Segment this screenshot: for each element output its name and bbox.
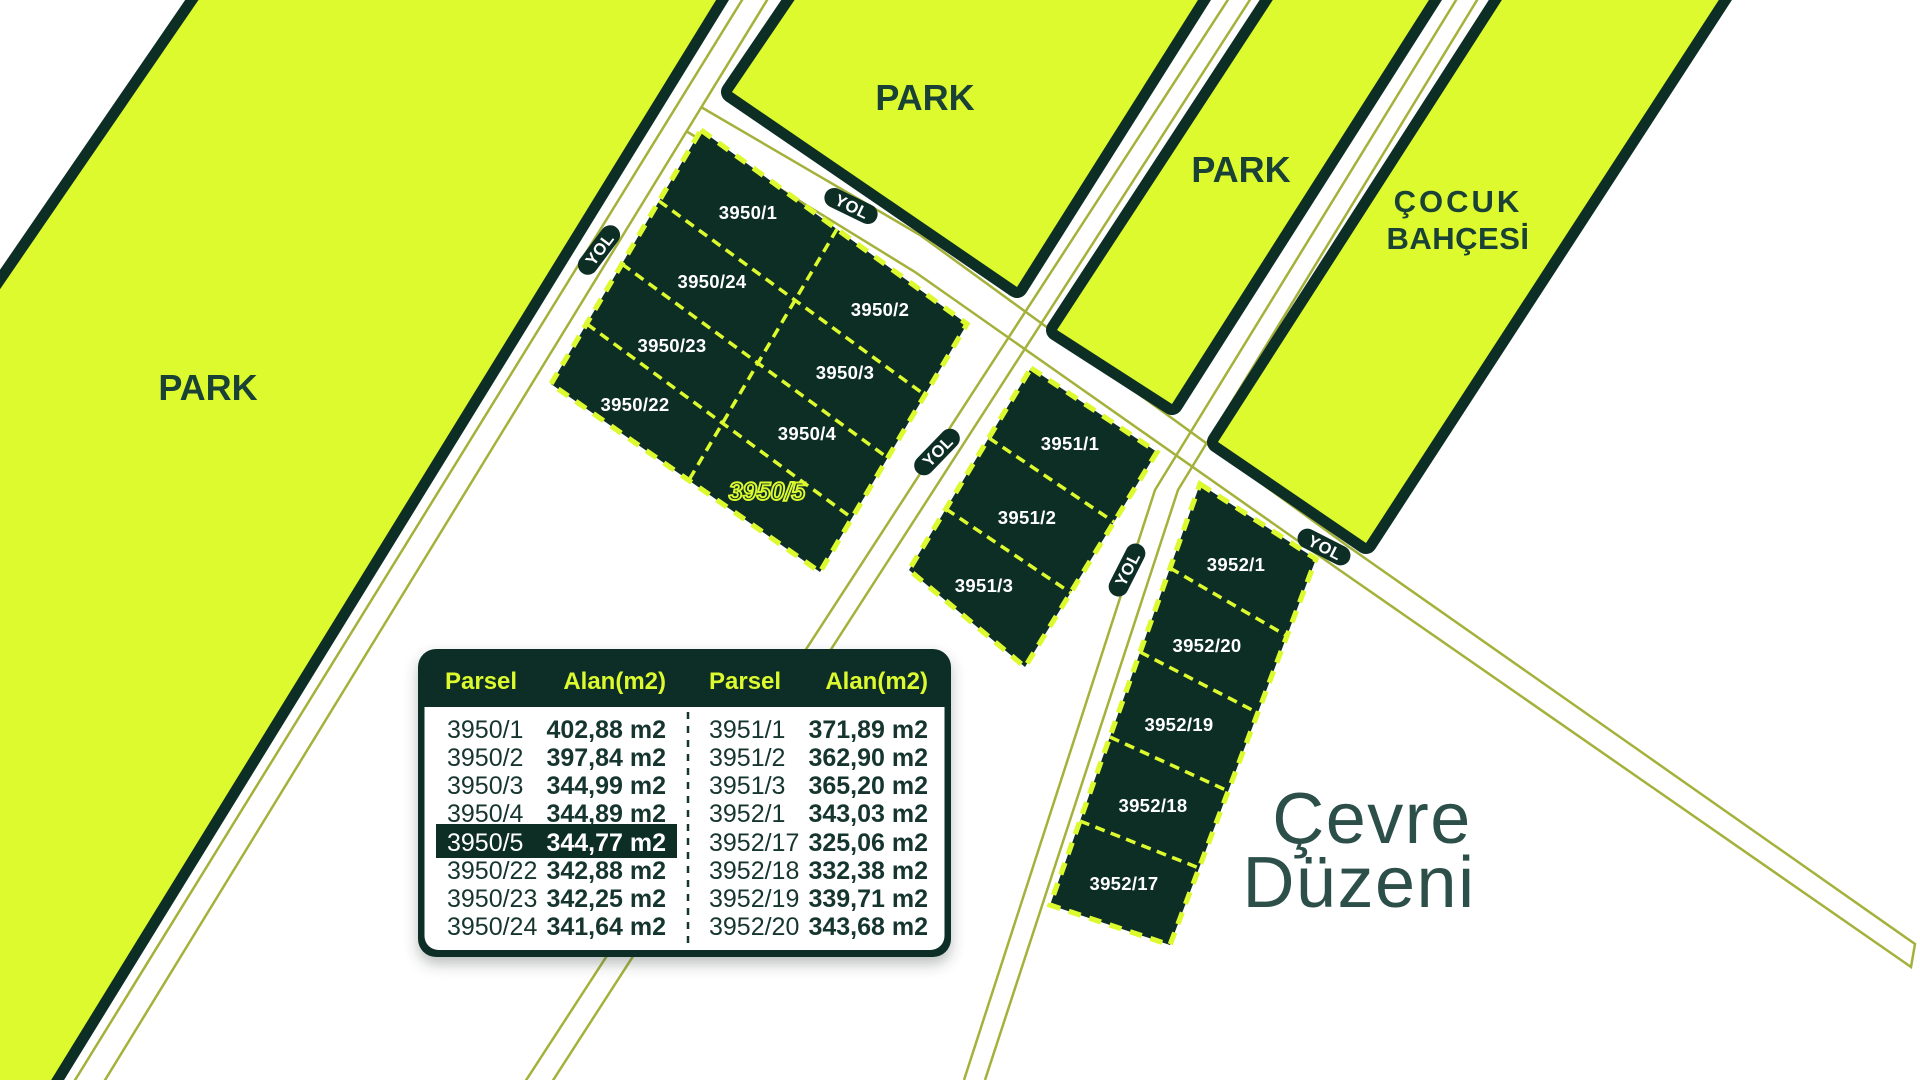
svg-text:3951/1: 3951/1 (1041, 433, 1099, 454)
svg-text:3952/20: 3952/20 (709, 913, 799, 941)
svg-text:3952/18: 3952/18 (1119, 795, 1188, 816)
svg-text:3952/20: 3952/20 (1173, 635, 1242, 656)
svg-text:3950/5: 3950/5 (447, 829, 523, 857)
svg-text:341,64 m2: 341,64 m2 (546, 913, 666, 941)
svg-text:3950/24: 3950/24 (678, 271, 747, 292)
svg-text:342,25 m2: 342,25 m2 (546, 885, 666, 913)
svg-text:3950/2: 3950/2 (851, 299, 909, 320)
svg-text:3952/17: 3952/17 (709, 829, 799, 857)
svg-text:3951/2: 3951/2 (709, 744, 785, 772)
svg-text:342,88 m2: 342,88 m2 (546, 857, 666, 885)
svg-text:3950/2: 3950/2 (447, 744, 523, 772)
svg-text:344,99 m2: 344,99 m2 (546, 772, 666, 800)
svg-text:3952/1: 3952/1 (709, 800, 785, 828)
svg-text:3950/4: 3950/4 (447, 800, 524, 828)
svg-text:3950/4: 3950/4 (778, 423, 837, 444)
svg-text:339,71 m2: 339,71 m2 (808, 885, 928, 913)
svg-text:343,68 m2: 343,68 m2 (808, 913, 928, 941)
svg-text:371,89 m2: 371,89 m2 (808, 716, 928, 744)
svg-text:3951/3: 3951/3 (709, 772, 785, 800)
svg-text:Düzeni: Düzeni (1242, 843, 1475, 923)
svg-text:Parsel: Parsel (445, 668, 517, 695)
svg-text:344,77 m2: 344,77 m2 (546, 829, 666, 857)
svg-text:3951/1: 3951/1 (709, 716, 785, 744)
svg-text:3950/22: 3950/22 (601, 394, 670, 415)
svg-text:3952/17: 3952/17 (1090, 873, 1159, 894)
svg-text:3950/5: 3950/5 (729, 478, 807, 506)
svg-text:3950/22: 3950/22 (447, 857, 537, 885)
svg-text:3952/19: 3952/19 (709, 885, 799, 913)
svg-text:402,88 m2: 402,88 m2 (546, 716, 666, 744)
svg-text:365,20 m2: 365,20 m2 (808, 772, 928, 800)
svg-text:PARK: PARK (1191, 149, 1290, 190)
svg-text:332,38 m2: 332,38 m2 (808, 857, 928, 885)
svg-text:BAHÇESİ: BAHÇESİ (1386, 221, 1529, 256)
svg-text:3951/2: 3951/2 (998, 507, 1056, 528)
svg-text:3950/1: 3950/1 (719, 202, 777, 223)
svg-text:344,89 m2: 344,89 m2 (546, 800, 666, 828)
svg-text:3952/1: 3952/1 (1207, 554, 1265, 575)
svg-text:Alan(m2): Alan(m2) (563, 668, 666, 695)
svg-text:3950/1: 3950/1 (447, 716, 523, 744)
svg-text:325,06 m2: 325,06 m2 (808, 829, 928, 857)
svg-text:3952/19: 3952/19 (1145, 714, 1214, 735)
svg-text:362,90 m2: 362,90 m2 (808, 744, 928, 772)
svg-text:3950/3: 3950/3 (816, 362, 874, 383)
svg-text:PARK: PARK (875, 77, 974, 118)
svg-text:3950/3: 3950/3 (447, 772, 523, 800)
svg-text:3952/18: 3952/18 (709, 857, 799, 885)
svg-text:397,84 m2: 397,84 m2 (546, 744, 666, 772)
svg-text:3950/23: 3950/23 (638, 335, 707, 356)
svg-text:Parsel: Parsel (709, 668, 781, 695)
svg-text:3950/23: 3950/23 (447, 885, 537, 913)
svg-text:Alan(m2): Alan(m2) (825, 668, 928, 695)
svg-text:343,03 m2: 343,03 m2 (808, 800, 928, 828)
svg-text:3950/24: 3950/24 (447, 913, 537, 941)
svg-text:3951/3: 3951/3 (955, 575, 1013, 596)
svg-text:ÇOCUK: ÇOCUK (1394, 184, 1523, 219)
svg-text:PARK: PARK (158, 367, 257, 408)
